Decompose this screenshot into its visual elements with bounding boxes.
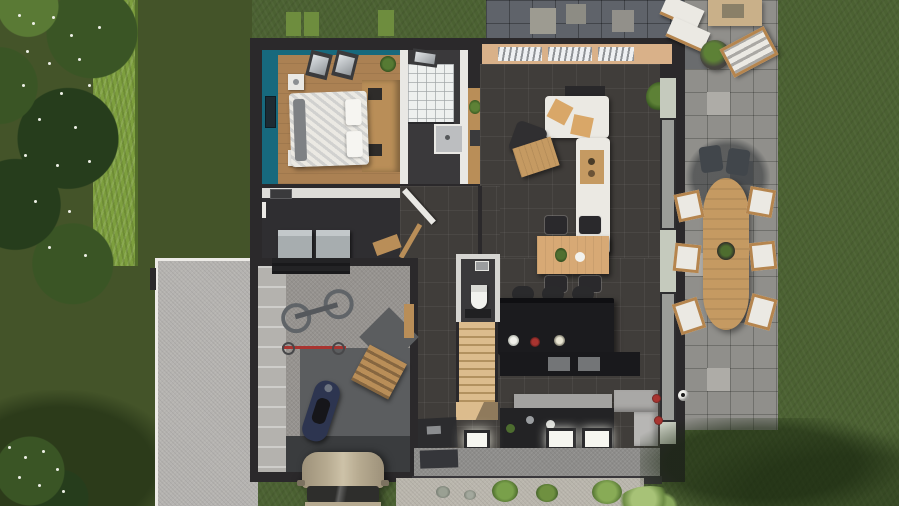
house <box>250 38 685 482</box>
bike-wheel <box>282 342 295 355</box>
trimmed-bush <box>286 12 301 36</box>
mountain-bike <box>277 277 359 339</box>
living-top-wall <box>482 44 672 64</box>
patio-chair <box>746 186 776 218</box>
floorplan-render <box>0 0 899 506</box>
patio-chair <box>673 243 702 274</box>
patio-chair <box>749 241 778 272</box>
dining-chair <box>545 216 567 234</box>
wall-frame <box>265 96 276 128</box>
blossom-trees <box>0 0 140 310</box>
room-bedroom <box>262 50 400 184</box>
lit-worktop <box>582 428 612 450</box>
paver-piece <box>530 8 556 34</box>
window <box>598 47 634 61</box>
skylight <box>331 50 359 81</box>
kitchen-counter <box>514 394 612 408</box>
bedroom-plant <box>380 56 396 72</box>
garage-house-door <box>404 304 414 338</box>
blossom-dots-2 <box>8 446 11 449</box>
bathroom-wall <box>460 50 468 184</box>
walk-in-shower <box>408 64 454 124</box>
drain <box>445 135 450 140</box>
car-windshield <box>307 486 379 502</box>
corner-bench <box>614 390 658 412</box>
bed-throw <box>293 99 307 161</box>
patio-chair-dark <box>698 145 723 174</box>
utility-side-window <box>262 202 266 218</box>
staircase <box>456 322 498 402</box>
patio-chair-dark <box>725 148 750 177</box>
motorcycle-headlamp <box>323 383 333 393</box>
window <box>498 47 542 61</box>
fire-table <box>708 0 762 26</box>
blossom-shrub-bottom-left <box>0 426 90 506</box>
entry-light <box>464 430 490 450</box>
driveway <box>155 258 258 506</box>
room-utility <box>262 188 400 258</box>
table-dish <box>575 252 585 262</box>
wc-mirror <box>475 261 489 271</box>
skylight-pane <box>335 54 355 75</box>
bathroom-wall <box>400 50 408 184</box>
dining-chair <box>579 216 601 234</box>
sofa-tray <box>580 150 604 184</box>
herb-plant <box>506 424 515 433</box>
outdoor-table <box>703 178 749 330</box>
motorcycle-seat <box>310 396 331 425</box>
car-roof <box>305 502 381 506</box>
tree-shadow-bottom-right <box>640 418 899 506</box>
skylight-pane <box>414 52 435 65</box>
car-hood <box>302 452 384 488</box>
sideboard-item <box>470 130 480 146</box>
shrub <box>536 484 558 502</box>
trimmed-bush <box>378 10 394 36</box>
nightstand <box>288 74 304 90</box>
kitchen-tall-units <box>500 352 640 376</box>
tray-item <box>588 158 595 165</box>
flower-vase-red <box>530 337 540 347</box>
trimmed-bush <box>304 12 319 36</box>
bike-wheel <box>332 342 345 355</box>
red-bike <box>282 340 346 356</box>
tray-item <box>588 170 595 177</box>
toilet-tank <box>471 285 487 292</box>
gravel-bed <box>396 478 644 506</box>
pillow <box>346 131 363 158</box>
pillow <box>345 99 362 126</box>
parked-car <box>302 452 384 506</box>
fire-table-top <box>722 4 744 18</box>
gray-plant <box>464 490 476 500</box>
room-wc <box>456 254 500 322</box>
blossom-dots <box>18 14 21 17</box>
hall-living-wall <box>478 186 482 262</box>
lamp <box>293 79 299 85</box>
wood-ramp <box>372 234 401 256</box>
bathroom-skylight <box>411 48 439 67</box>
driveway-post <box>150 268 156 290</box>
window-right <box>660 118 676 230</box>
car-mirror <box>381 480 389 486</box>
paver-piece <box>566 4 586 24</box>
paver-piece <box>707 92 730 115</box>
paver-piece <box>707 368 730 391</box>
stair-landing <box>456 402 498 420</box>
patio-chair <box>673 190 704 223</box>
window <box>548 47 592 61</box>
appliance <box>578 357 600 371</box>
soccer-ball <box>678 390 689 401</box>
porch-mat <box>420 449 459 468</box>
double-bed <box>289 91 370 168</box>
gray-plant <box>436 486 450 498</box>
flower-vase-white <box>508 335 519 346</box>
paver-piece <box>612 10 634 32</box>
red-flowers <box>652 394 661 403</box>
toilet <box>471 285 487 309</box>
flower-vase-pale <box>554 335 565 346</box>
kettle <box>526 416 534 424</box>
room-garage <box>250 258 418 480</box>
wardrobe-shelf <box>368 144 382 156</box>
room-bathroom <box>400 50 468 184</box>
sofa-cushion <box>570 114 594 138</box>
appliance <box>548 357 570 371</box>
kitchen-island <box>498 298 614 355</box>
skylight-pane <box>309 54 329 75</box>
dining-table <box>537 236 609 274</box>
skylight <box>305 50 333 81</box>
ball-patch <box>681 393 685 397</box>
bike-rack <box>272 258 350 274</box>
table-plant <box>555 248 567 262</box>
entry-mat <box>416 417 458 449</box>
wardrobe-shelf <box>368 88 382 100</box>
wc-mat <box>465 309 491 318</box>
shrub <box>492 480 518 502</box>
mat-item <box>427 426 441 435</box>
utility-window <box>270 189 292 199</box>
table-planter <box>717 242 735 260</box>
lit-worktop <box>546 428 576 450</box>
shower-tray <box>434 124 464 154</box>
car-mirror <box>297 480 305 486</box>
